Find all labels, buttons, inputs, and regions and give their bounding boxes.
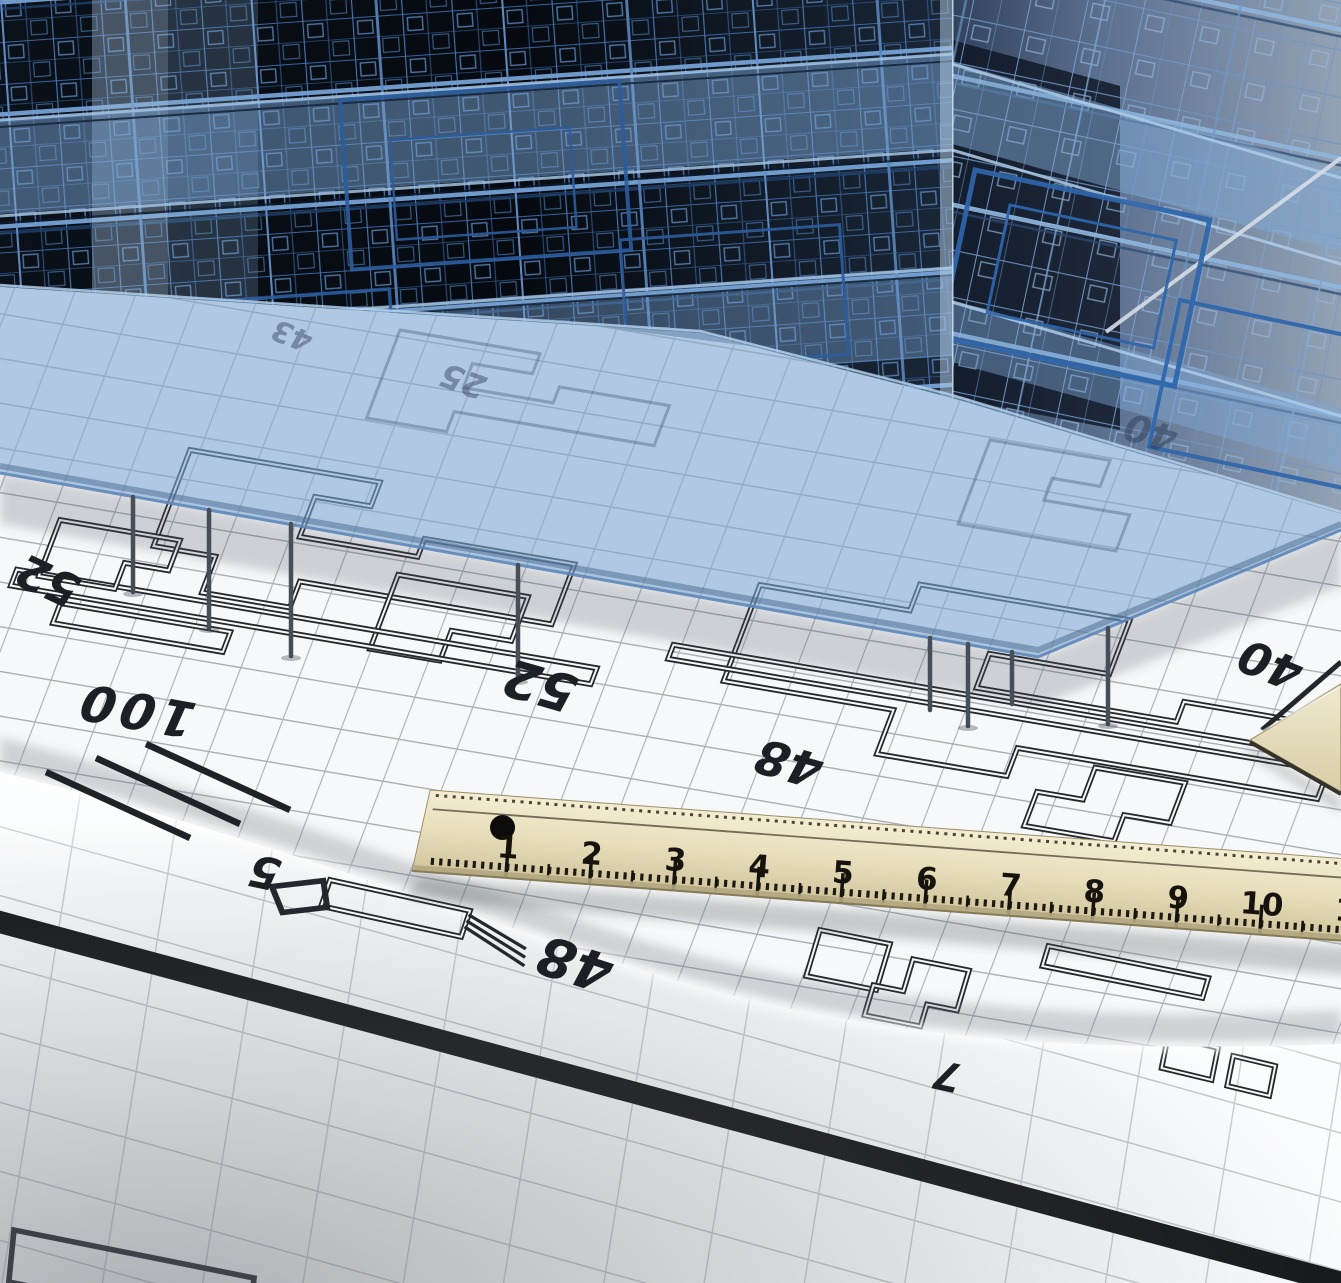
blueprint-photo: 40 25 43 <box>0 0 1341 1283</box>
ruler-number: 8 <box>1082 873 1106 911</box>
ruler-number: 9 <box>1166 880 1190 918</box>
ruler-number: 3 <box>663 842 687 880</box>
ruler-number: 10 <box>1239 885 1285 924</box>
ruler-number: 6 <box>915 861 939 899</box>
ruler-number: 1 <box>496 829 520 867</box>
ruler-number: 2 <box>580 836 604 874</box>
ruler-number: 5 <box>831 854 855 892</box>
ruler-number: 7 <box>998 867 1022 905</box>
ruler-number: 4 <box>747 848 771 886</box>
